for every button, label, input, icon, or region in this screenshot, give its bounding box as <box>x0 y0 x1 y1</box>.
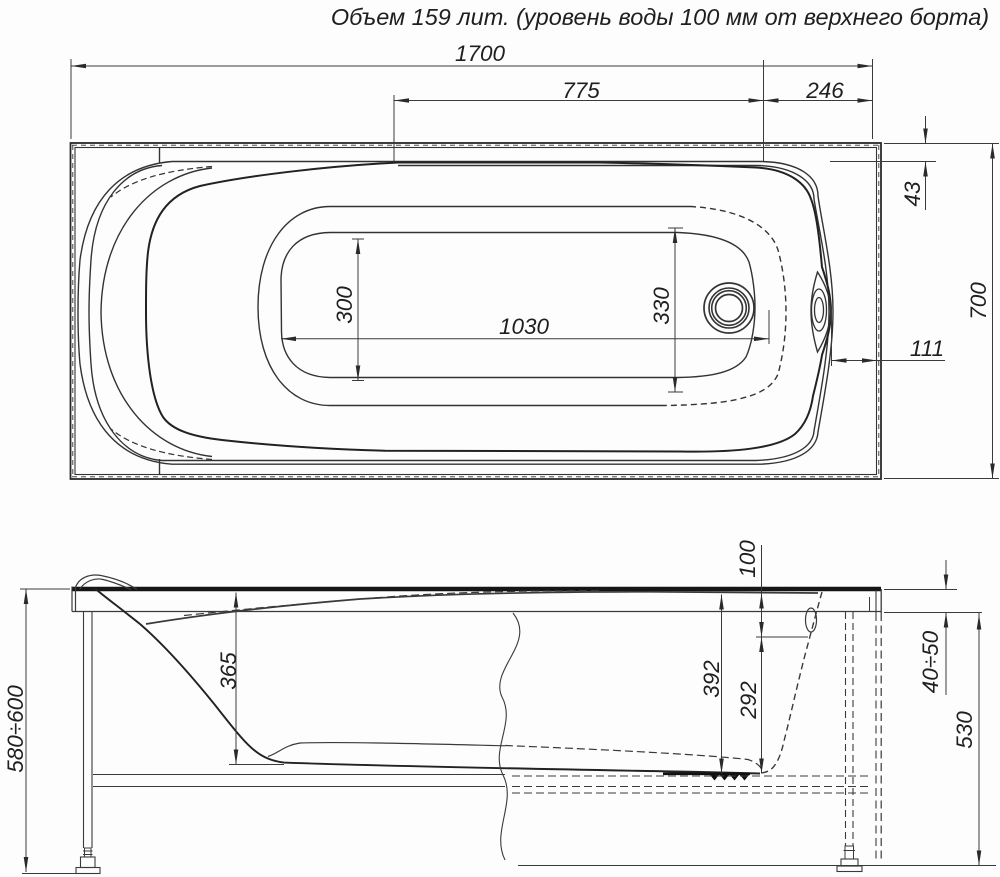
svg-text:1700: 1700 <box>455 41 506 66</box>
svg-text:Объем 159 лит. (уровень воды 1: Объем 159 лит. (уровень воды 100 мм от в… <box>331 4 989 30</box>
svg-text:40÷50: 40÷50 <box>918 630 943 693</box>
svg-text:292: 292 <box>736 681 761 720</box>
svg-text:1030: 1030 <box>499 314 550 339</box>
svg-text:100: 100 <box>735 540 760 578</box>
svg-text:330: 330 <box>649 287 674 325</box>
svg-text:365: 365 <box>216 652 241 690</box>
svg-text:246: 246 <box>805 78 844 103</box>
svg-text:530: 530 <box>952 711 977 749</box>
svg-text:775: 775 <box>562 78 600 103</box>
svg-text:300: 300 <box>332 286 357 324</box>
svg-text:392: 392 <box>699 660 724 698</box>
svg-text:111: 111 <box>910 336 944 361</box>
svg-text:700: 700 <box>966 282 991 320</box>
svg-text:43: 43 <box>900 181 925 207</box>
svg-text:580÷600: 580÷600 <box>3 685 28 773</box>
